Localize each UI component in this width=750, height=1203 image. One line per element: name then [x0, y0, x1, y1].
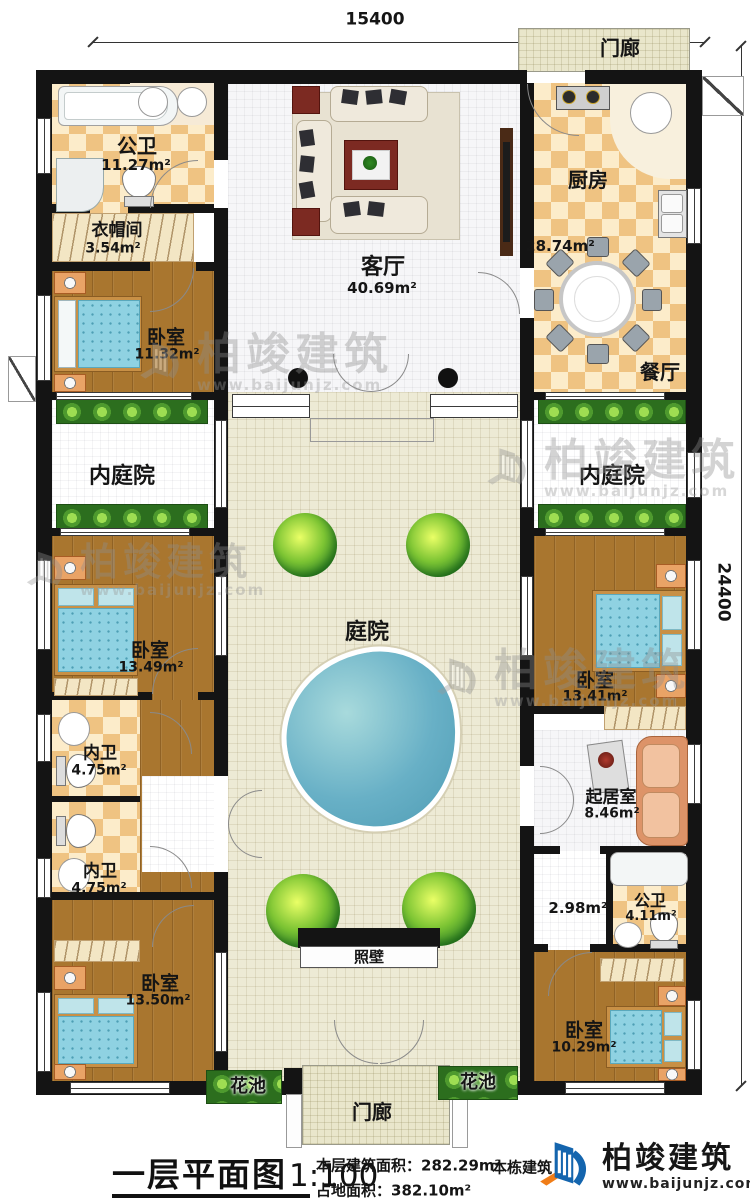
toilet-tank: [650, 940, 678, 949]
wall: [520, 826, 534, 1081]
window: [37, 992, 51, 1072]
window: [687, 188, 701, 244]
shower: [56, 158, 104, 212]
tree: [406, 513, 470, 577]
wall: [52, 262, 150, 271]
toilet-tank: [56, 816, 66, 846]
chair: [642, 289, 662, 311]
floor-area-label-text: 本层建筑面积：: [316, 1157, 421, 1175]
dimension-line-right: [741, 46, 742, 1086]
bed-mattress: [58, 1016, 134, 1064]
bed-pillow: [98, 588, 134, 606]
bed-pillow: [662, 596, 682, 630]
wardrobe: [600, 958, 684, 982]
brand-name: 柏竣建筑: [602, 1144, 750, 1174]
sofa-pillow: [343, 201, 361, 217]
room-area-kitchen: 28.74m²: [525, 238, 595, 255]
wall: [534, 944, 548, 952]
porch-pillar: [452, 1094, 468, 1148]
land-area-label-text: 占地面积：: [316, 1182, 391, 1200]
sofa-pillow: [389, 89, 407, 106]
nightstand: [54, 272, 86, 294]
wardrobe: [54, 940, 140, 962]
planter-strip: [538, 504, 686, 530]
sofa-pillow: [299, 129, 315, 147]
room-area-cloakroom: 3.54m²: [85, 241, 140, 256]
sink-icon: [177, 87, 207, 117]
bed-mattress: [610, 1010, 662, 1064]
wall: [520, 318, 534, 392]
bathtub: [610, 852, 688, 886]
sink-icon: [138, 87, 168, 117]
room-label-inner-bath-b: 内卫: [83, 863, 117, 882]
wall: [214, 536, 228, 776]
window: [215, 952, 227, 1052]
round-basin: [630, 92, 672, 134]
room-label-public-bath-bottom: 公卫: [634, 892, 666, 910]
label-screen-wall: 照壁: [354, 949, 384, 966]
bed-mattress: [596, 594, 660, 668]
room-label-living: 客厅: [361, 256, 405, 280]
bay-box: [8, 356, 36, 402]
dimension-depth: 24400: [714, 562, 733, 621]
floor-plan: 15400 24400 门廊: [0, 0, 750, 1203]
room-area-living: 40.69m²: [347, 280, 417, 297]
title-underline: [112, 1194, 310, 1198]
nightstand: [54, 966, 86, 990]
room-label-courtyard: 庭院: [345, 621, 389, 645]
room-label-inner-courtyard-right: 内庭院: [579, 465, 645, 489]
room-area-public-bath-top: 11.27m²: [101, 157, 171, 174]
screen-wall: [298, 928, 440, 948]
bed-pillow: [664, 1012, 682, 1036]
window: [565, 1082, 665, 1094]
room-area-bedroom-d: 13.50m²: [125, 993, 190, 1008]
window: [687, 1000, 701, 1070]
label-flower-bed-right: 花池: [460, 1073, 496, 1093]
brand-logo-icon: [534, 1136, 596, 1198]
window: [545, 528, 665, 536]
window: [545, 392, 665, 400]
room-area-inner-bath-b: 4.75m²: [71, 881, 126, 896]
entry-steps: [232, 394, 310, 418]
room-area-bedroom-a: 11.32m²: [134, 347, 199, 362]
burner: [586, 90, 600, 104]
window: [37, 295, 51, 381]
brand-website: www.baijunjz.com: [602, 1177, 750, 1191]
room-area-bedroom-e: 10.29m²: [551, 1040, 616, 1055]
tree: [273, 513, 337, 577]
window: [687, 560, 701, 650]
nightstand: [656, 674, 686, 698]
window: [37, 714, 51, 762]
sink-icon: [614, 922, 642, 948]
room-label-cloakroom: 衣帽间: [92, 222, 143, 241]
planter-strip: [538, 398, 686, 424]
room-area-hall: 2.98m²: [548, 900, 607, 917]
wardrobe: [54, 678, 138, 696]
window: [687, 452, 701, 498]
room-area-bedroom-c: 13.41m²: [562, 689, 627, 704]
column: [288, 368, 308, 388]
column: [438, 368, 458, 388]
sofa-pillow: [367, 201, 385, 217]
wall: [196, 262, 214, 271]
room-label-bedroom-a: 卧室: [147, 328, 185, 349]
floor-area-label: 本层建筑面积：282.29m²: [316, 1155, 501, 1176]
window: [60, 528, 190, 536]
bed-pillow: [664, 1040, 682, 1062]
side-table: [292, 208, 320, 236]
label-flower-bed-left: 花池: [230, 1077, 266, 1097]
sofa-pillow: [365, 89, 382, 105]
sofa-pillow: [341, 89, 359, 105]
bed-mattress: [78, 300, 140, 368]
room-area-bedroom-b: 13.49m²: [118, 660, 183, 675]
sofa-pillow: [299, 155, 315, 172]
plant: [598, 752, 614, 768]
room-label-public-bath-top: 公卫: [117, 135, 157, 157]
room-label-inner-bath-a: 内卫: [83, 745, 117, 764]
planter-strip: [56, 398, 208, 424]
window: [37, 858, 51, 898]
dining-table-top: [574, 276, 620, 322]
window: [687, 744, 701, 804]
room-area-inner-bath-a: 4.75m²: [71, 763, 126, 778]
nightstand: [54, 556, 86, 580]
room-label-bedroom-b: 卧室: [131, 641, 169, 662]
land-area-label: 占地面积：382.10m²: [316, 1180, 471, 1201]
bed-pillow: [58, 998, 94, 1014]
chair: [534, 289, 554, 311]
bed-pillow: [58, 588, 94, 606]
floor-area-value: 282.29m²: [421, 1157, 501, 1175]
window: [521, 420, 533, 508]
land-area-value: 382.10m²: [391, 1182, 471, 1200]
chair: [587, 344, 609, 364]
wall: [214, 83, 228, 160]
tv-icon: [503, 142, 510, 242]
wall: [52, 796, 140, 802]
nightstand: [658, 1068, 686, 1081]
sink-basin: [661, 214, 683, 233]
sink-icon: [58, 712, 90, 746]
sofa-pillow: [299, 181, 316, 199]
room-label-dining: 餐厅: [640, 361, 680, 383]
room-label-porch-top: 门廊: [600, 37, 640, 59]
room-label-bedroom-e: 卧室: [565, 1021, 603, 1042]
room-label-inner-courtyard-left: 内庭院: [89, 465, 155, 489]
dimension-width: 15400: [345, 11, 404, 30]
window: [56, 392, 192, 400]
nightstand: [656, 564, 686, 588]
window: [37, 560, 51, 650]
room-label-kitchen: 厨房: [568, 169, 608, 191]
brand-logo: 柏竣建筑 www.baijunjz.com: [534, 1136, 750, 1198]
sofa-cushion: [642, 744, 680, 788]
bed-pillow: [662, 634, 682, 666]
wall: [534, 706, 604, 714]
room-label-porch-bottom: 门廊: [352, 1101, 392, 1123]
planter-strip: [56, 504, 208, 530]
room-area-sitting: 8.46m²: [584, 806, 639, 821]
room-area-public-bath-bottom: 4.11m²: [625, 910, 676, 924]
wall: [214, 208, 228, 392]
window: [215, 576, 227, 656]
nightstand: [54, 1064, 86, 1080]
plan-title-text: 一层平面图: [112, 1148, 287, 1196]
wardrobe: [604, 706, 686, 730]
step: [310, 418, 434, 442]
side-table: [292, 86, 320, 114]
bed-pillow: [58, 300, 76, 368]
wall: [585, 70, 702, 84]
nightstand: [658, 986, 686, 1006]
porch-pillar: [286, 1094, 302, 1148]
sofa-cushion: [642, 792, 680, 838]
sink-basin: [661, 194, 683, 213]
window: [37, 118, 51, 174]
window: [521, 576, 533, 656]
wall: [198, 692, 214, 700]
room-label-bedroom-d: 卧室: [141, 974, 179, 995]
bay-box: [702, 76, 744, 116]
plant: [363, 156, 377, 170]
toilet-tank: [56, 756, 66, 786]
nightstand: [54, 374, 86, 392]
entry-steps: [430, 394, 518, 418]
wall: [534, 846, 560, 854]
window: [70, 1082, 170, 1094]
wall: [36, 70, 527, 84]
window: [215, 420, 227, 508]
